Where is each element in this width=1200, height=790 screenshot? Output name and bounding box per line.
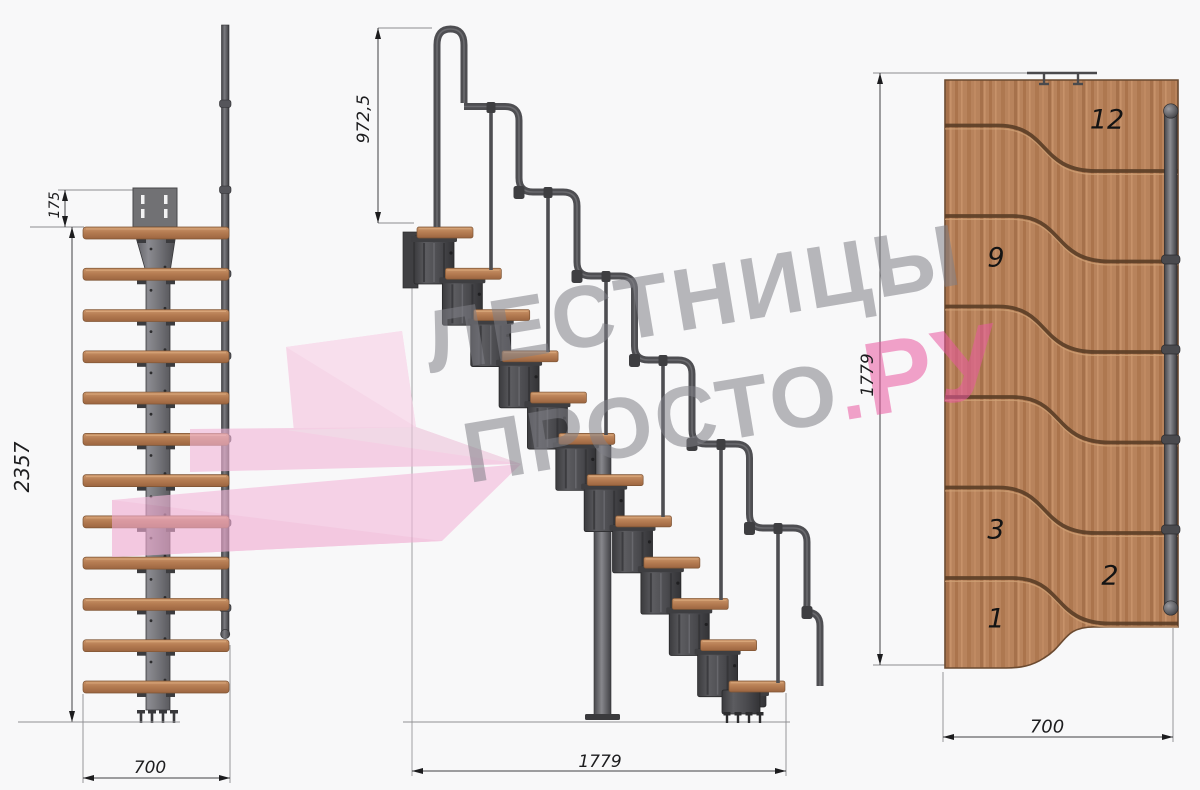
handrail-joint [572,270,583,283]
handrail-joint [659,355,668,366]
plan-step-number: 3 [987,515,1004,546]
plan-step-number: 9 [987,243,1004,274]
dim-plan-length: 1779 [858,353,878,396]
dimension-arrow [775,768,786,774]
dimension-arrow [877,73,883,84]
dimension-arrow [69,227,75,238]
dimension-arrow [412,768,423,774]
column-feet [137,710,178,723]
rail-end-ball [1164,104,1178,118]
plan-view-drawing [850,0,1200,790]
plan-step-number: 1 [987,604,1004,635]
handrail-joint [687,438,698,451]
handrail-joint [602,271,611,282]
handrail-joint [774,523,783,534]
dim-front-width: 700 [134,758,166,778]
central-column [133,227,177,710]
front-baluster-pole [220,25,232,639]
handrail-joint [487,102,496,113]
staircase-technical-drawing: ЛЕСТНИЦЫ ПРОСТО.РУ 175 2357 700 972,5 17… [0,0,1200,790]
pole-end-ball [221,629,230,638]
plan-step-number: 2 [1101,561,1118,592]
dimension-arrow [83,775,94,781]
rail-joint-collar [1162,435,1181,444]
dimension-arrow [375,212,381,223]
plan-step-number: 12 [1090,105,1124,136]
pole-joint-collar [220,186,232,194]
support-post-base [585,714,620,720]
plan-handrail [1162,104,1181,615]
dim-front-plate-offset: 175 [47,192,63,219]
dimension-arrow [375,28,381,39]
wall-mount-plate [133,188,177,227]
handrail-joint [802,606,813,619]
handrail-top-loop [437,29,464,227]
dimension-arrow [877,654,883,665]
dim-side-handrail-height: 972,5 [354,95,374,144]
rail-joint-collar [1162,525,1181,534]
dimension-arrow [1162,734,1173,740]
dimension-arrow [219,775,230,781]
rail-end-ball [1164,601,1178,615]
side-view-drawing [330,0,890,790]
front-view-drawing [0,0,330,790]
handrail-joint [544,187,553,198]
dim-front-total-height: 2357 [10,442,34,493]
handrail-joint [514,186,525,199]
rail-joint-collar [1162,255,1181,264]
handrail-joint [744,522,755,535]
dim-side-length: 1779 [578,752,621,772]
dim-plan-width: 700 [1030,717,1064,738]
rail-joint-collar [1162,345,1181,354]
handrail-joint [629,354,640,367]
handrail-joint [717,439,726,450]
dimension-arrow [943,734,954,740]
dimension-arrow [69,711,75,722]
pole-joint-collar [220,100,232,108]
